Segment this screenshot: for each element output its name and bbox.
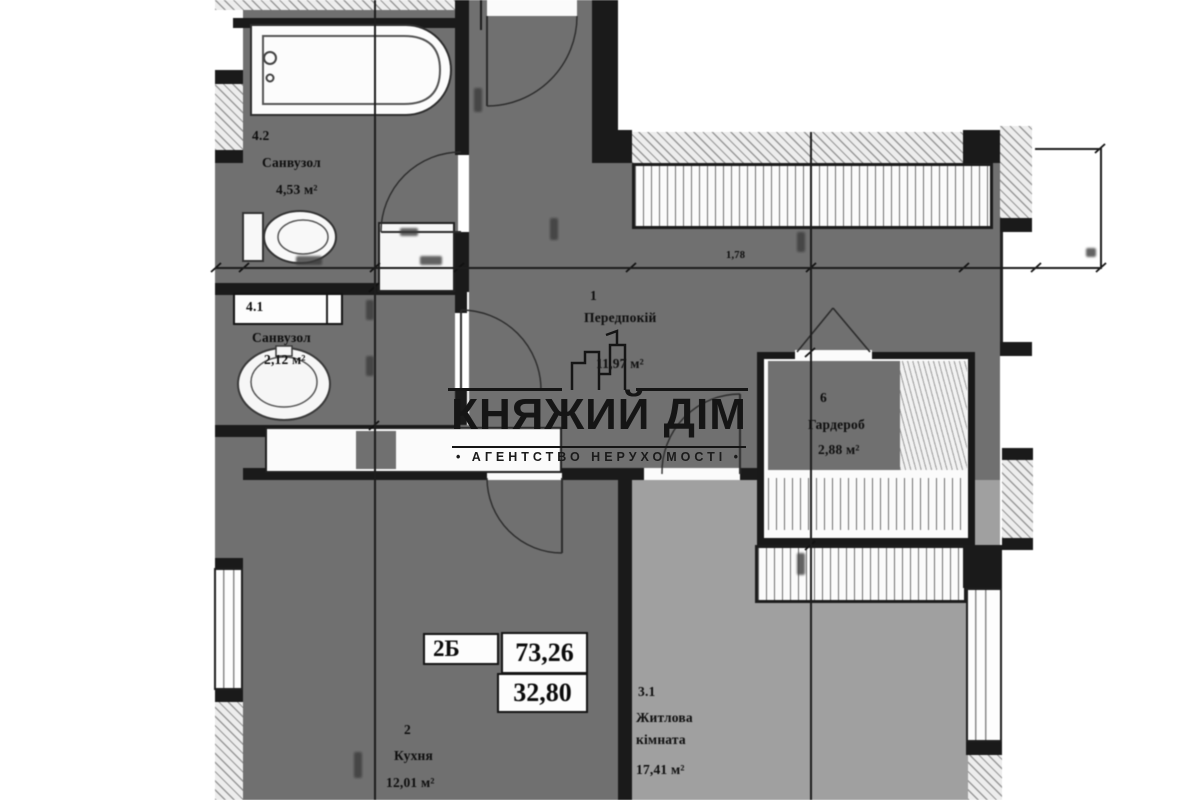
watermark: КНЯЖИЙ ДІМ • АГЕНТСТВО НЕРУХОМОСТІ • <box>0 0 1190 800</box>
watermark-brand: КНЯЖИЙ ДІМ <box>424 390 774 440</box>
floorplan-image: 4.2 Санвузол 4,53 м² 4.1 Санвузол 2,12 м… <box>0 0 1190 800</box>
watermark-divider <box>452 446 746 448</box>
castle-icon <box>572 331 625 390</box>
watermark-tagline: • АГЕНТСТВО НЕРУХОМОСТІ • <box>436 450 762 464</box>
